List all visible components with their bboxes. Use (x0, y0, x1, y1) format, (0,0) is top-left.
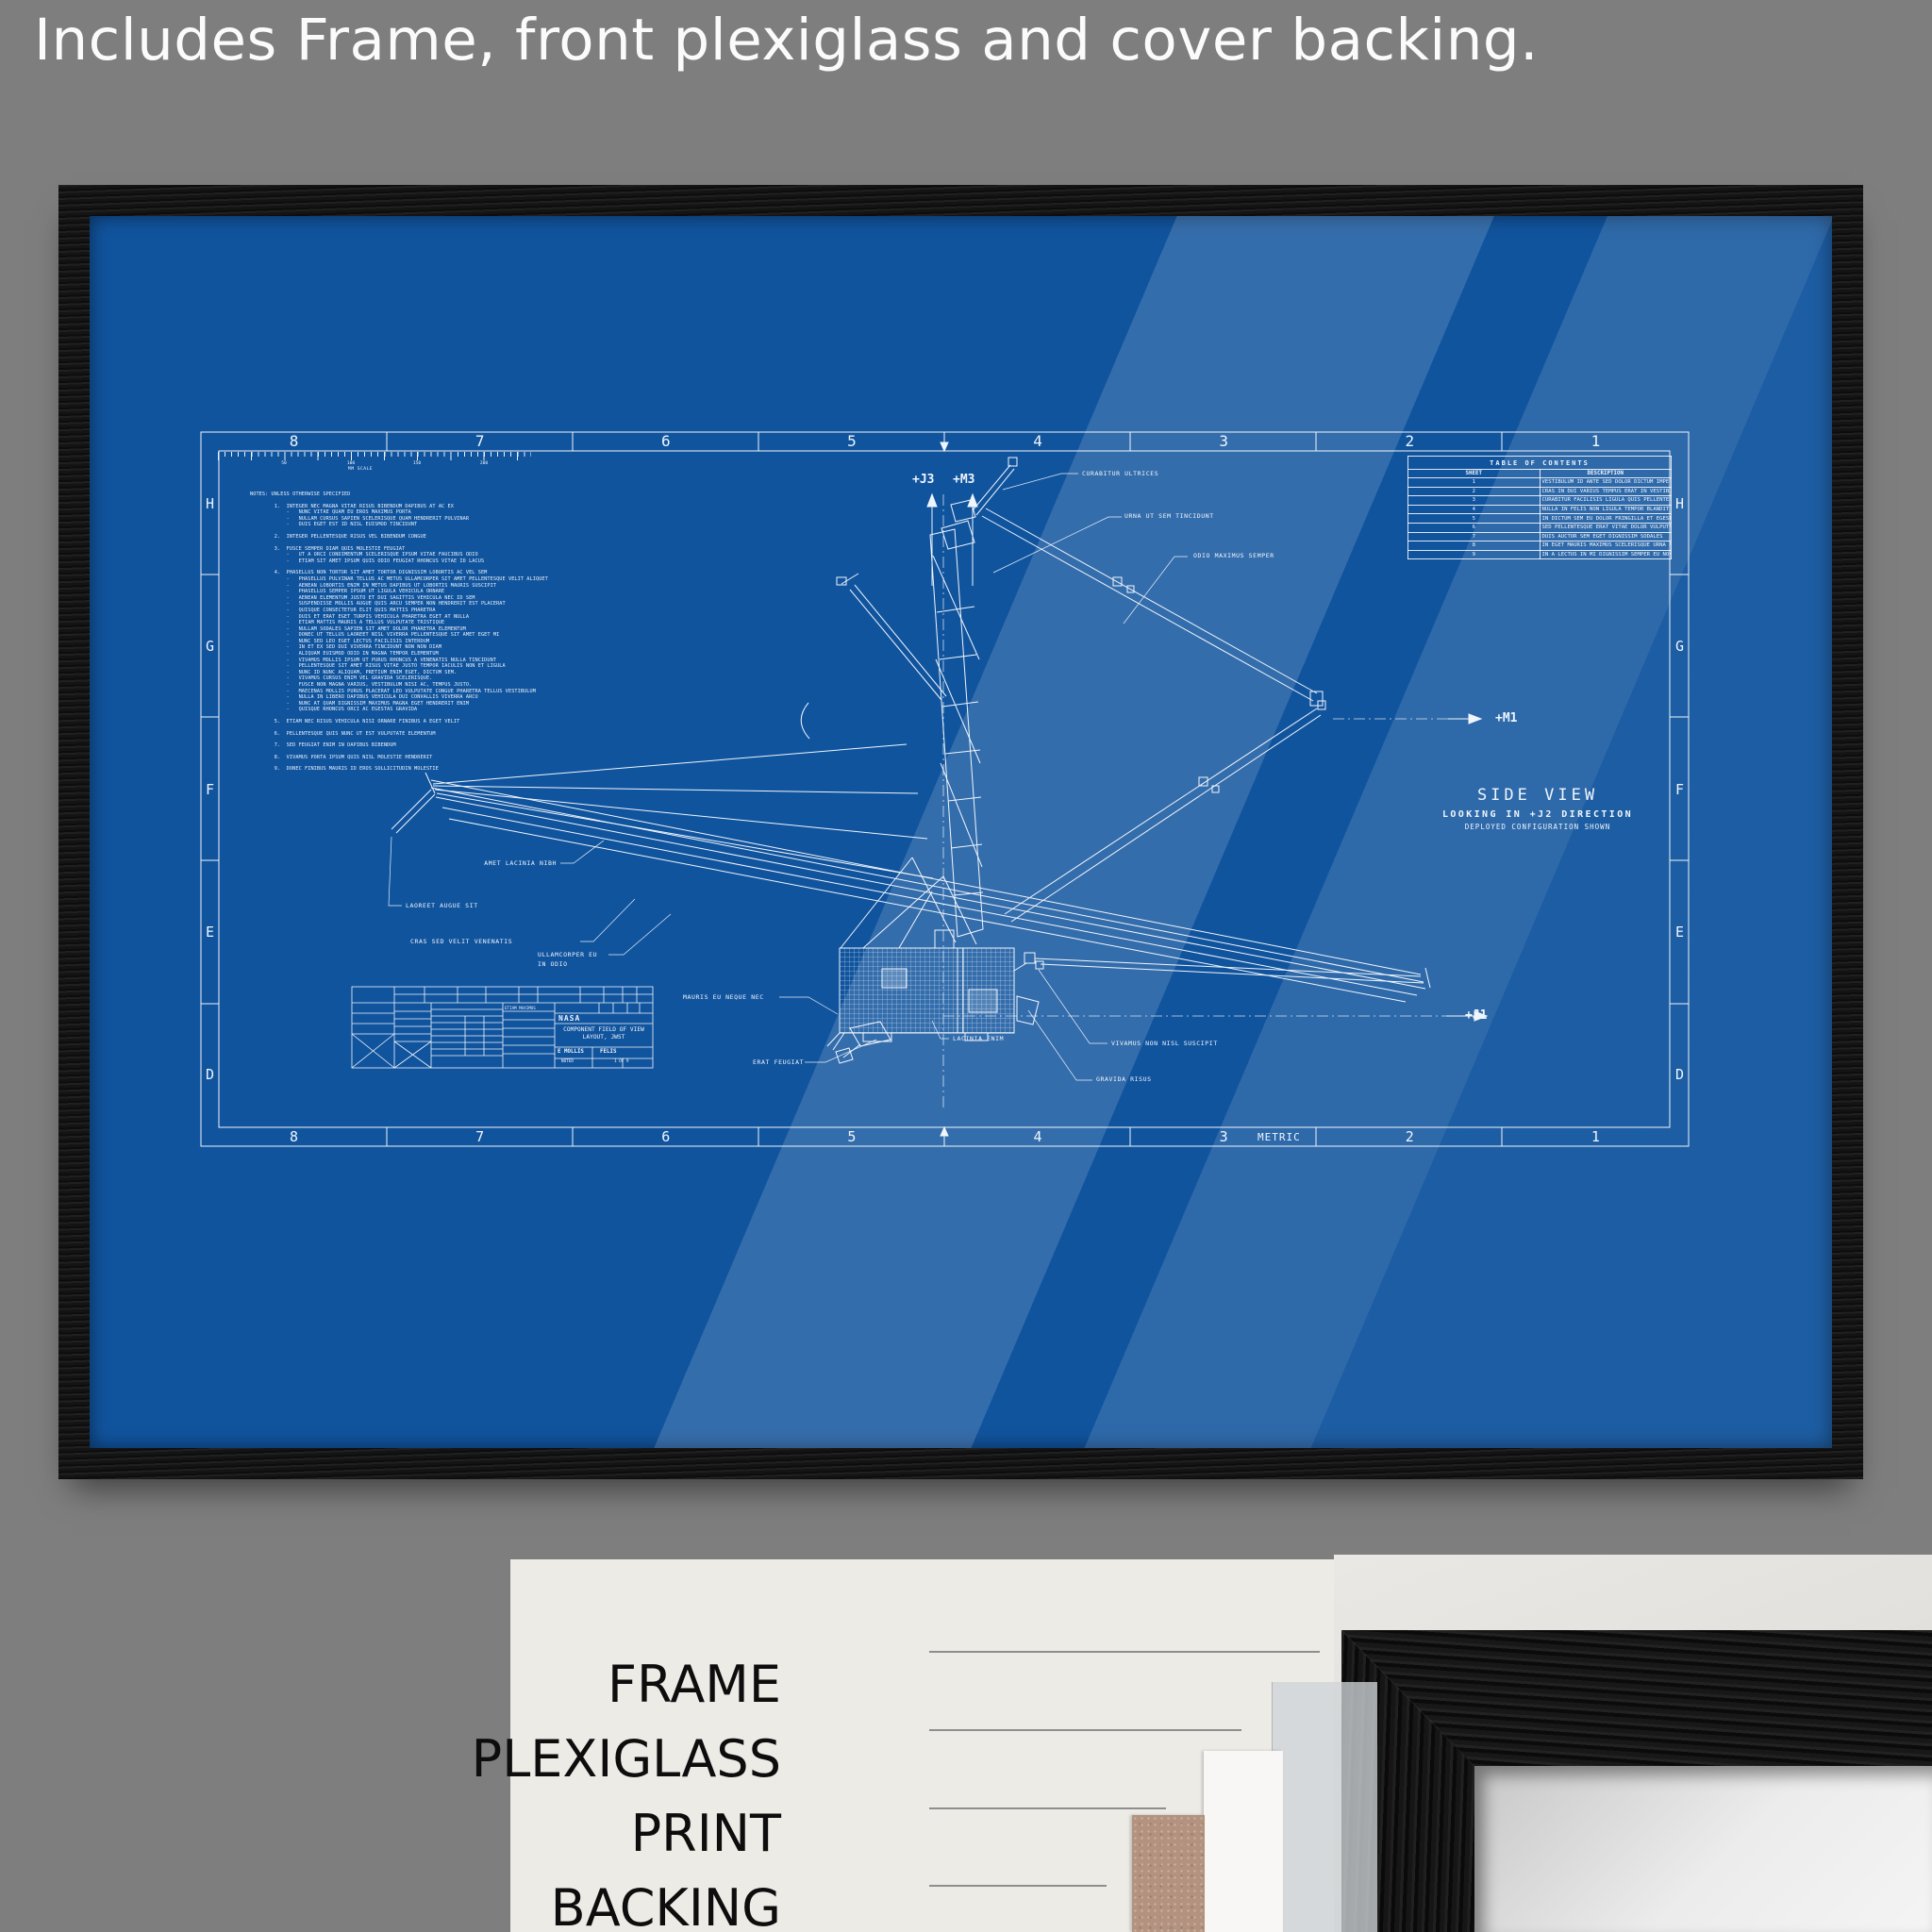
toc-col-sheet: SHEET (1408, 470, 1541, 478)
view-title: SIDE VIEW (1396, 786, 1679, 805)
zone-letter: E (1671, 860, 1689, 1003)
toc-description: IN DICTUM SEM EU DOLOR FRINGILLA ET EGES… (1540, 514, 1672, 524)
zone-letter: G (1671, 575, 1689, 717)
zone-number: 8 (201, 1127, 387, 1146)
axis-label-m1: +M1 (1495, 711, 1517, 725)
note-line: - NULLAM CURSUS SAPIEN SCELERISQUE QUAM … (250, 516, 548, 523)
notes-block: NOTES: UNLESS OTHERWISE SPECIFIED 1. INT… (250, 491, 548, 773)
zone-letter: D (1671, 1004, 1689, 1146)
drawing-title-line2: LAYOUT, JWST (555, 1034, 653, 1041)
note-line: 4. PHASELLUS NON TORTOR SIT AMET TORTOR … (250, 570, 548, 576)
toc-description: CURABITUR FACILISIS LIGULA QUIS PELLENTE… (1540, 496, 1672, 506)
toc-sheet-number: 3 (1408, 496, 1541, 506)
view-subtitle: LOOKING IN +J2 DIRECTION (1396, 809, 1679, 820)
zone-letter: G (201, 575, 219, 717)
blueprint-print: 87654321 87654321 HGFED HGFED METRIC 501… (90, 216, 1832, 1448)
zone-number: 5 (758, 432, 944, 451)
toc-row: 6 SED PELLENTESQUE ERAT VITAE DOLOR VULP… (1408, 523, 1672, 532)
jwst-side-view-drawing (90, 216, 1832, 1448)
print-layer (1204, 1751, 1283, 1932)
title-block-agency: NASA (558, 1014, 580, 1023)
zone-letter: D (201, 1004, 219, 1146)
note-line: - NUNC SED LEO EGET LECTUS FACILISIS INT… (250, 639, 548, 645)
zone-letter: F (201, 718, 219, 860)
toc-description: CRAS IN DUI VARIUS TEMPUS ERAT IN VESTIB… (1540, 487, 1672, 496)
zone-letter: H (1671, 432, 1689, 575)
leader-line-plexiglass (929, 1729, 1241, 1731)
note-line: - VIVAMUS CURSUS ENIM VEL GRAVIDA SCELER… (250, 675, 548, 682)
toc-row: 3 CURABITUR FACILISIS LIGULA QUIS PELLEN… (1408, 496, 1672, 506)
callout-cras-sed-velit: CRAS SED VELIT VENENATIS (410, 938, 512, 946)
note-line: - SUSPENDISSE MOLLIS AUGUE QUIS ARCU SEM… (250, 601, 548, 608)
axis-label-m3: +M3 (953, 473, 974, 487)
title-block-name1: E MOLLIS (558, 1049, 584, 1055)
note-line: - QUISQUE RHONCUS ORCI AC EGESTAS GRAVID… (250, 707, 548, 713)
callout-erat-feugiat: ERAT FEUGIAT (753, 1058, 804, 1067)
callout-ullamcorper-line2: IN ODIO (538, 960, 568, 969)
toc-description: VESTIBULUM ID ANTE SED DOLOR DICTUM IMPE… (1540, 478, 1672, 488)
axis-label-j1: +J1 (1465, 1008, 1487, 1023)
layer-labels: FRAMEPLEXIGLASSPRINTBACKING (64, 1647, 781, 1932)
ruler-tick-label: 150 (413, 461, 421, 466)
picture-frame: 87654321 87654321 HGFED HGFED METRIC 501… (58, 185, 1863, 1479)
toc-description: DUIS AUCTOR SEM EGET DIGNISSIM SODALES (1540, 532, 1672, 541)
note-line: - UT A ORCI CONDIMENTUM SCELERISQUE IPSU… (250, 552, 548, 558)
photo-frame-opening (1474, 1766, 1932, 1932)
note-line: - NUNC AT QUAM DIGNISSIM MAXIMUS MAGNA E… (250, 701, 548, 708)
layer-label: PLEXIGLASS (64, 1722, 781, 1796)
note-line: 7. SED FEUGIAT ENIM IN DAPIBUS BIBENDUM (250, 742, 548, 749)
ruler-ticks (218, 452, 531, 460)
zone-number: 7 (387, 1127, 573, 1146)
border-zone-numbers-bottom: 87654321 (201, 1127, 1689, 1146)
caption-text: Includes Frame, front plexiglass and cov… (34, 4, 1539, 77)
zone-number: 3 (1131, 432, 1317, 451)
callout-ullamcorper-line1: ULLAMCORPER EU (538, 951, 597, 959)
toc-sheet-number: 5 (1408, 514, 1541, 524)
title-block-sheet-note: 1 OF 9 (614, 1059, 629, 1064)
view-title-block: SIDE VIEW LOOKING IN +J2 DIRECTION DEPLO… (1396, 786, 1679, 831)
note-line: - NUNC VITAE QUAM EU EROS MAXIMUS PORTA (250, 509, 548, 516)
note-line: - PHASELLUS PULVINAR TELLUS AC METUS ULL… (250, 576, 548, 583)
ruler-caption: MM SCALE (348, 467, 373, 472)
toc-sheet-number: 2 (1408, 487, 1541, 496)
border-zone-letters-left: HGFED (201, 432, 219, 1146)
note-line: - ALIQUAM EUISMOD ODIO IN MAGNA TEMPOR E… (250, 651, 548, 658)
leader-line-backing (929, 1885, 1107, 1887)
callout-odio-maximus: ODIO MAXIMUS SEMPER (1193, 552, 1274, 560)
toc-row: 7 DUIS AUCTOR SEM EGET DIGNISSIM SODALES (1408, 532, 1672, 541)
zone-number: 4 (945, 432, 1131, 451)
callout-amet-lacinia: AMET LACINIA NIBH (453, 859, 557, 868)
ruler-tick-label: 200 (480, 461, 488, 466)
note-line: 8. VIVAMUS PORTA IPSUM QUIS NISL MOLESTI… (250, 755, 548, 761)
callout-gravida-risus: GRAVIDA RISUS (1096, 1075, 1152, 1084)
ruler-tick-label: 50 (281, 461, 287, 466)
toc-description: IN A LECTUS IN MI DIGNISSIM SEMPER EU NO… (1540, 550, 1672, 559)
zone-letter: H (201, 432, 219, 575)
layer-label: FRAME (64, 1647, 781, 1722)
note-line: - AENEAN LOBORTIS ENIM IN METUS DAPIBUS … (250, 583, 548, 590)
note-line: - DONEC UT TELLUS LAOREET NISL VIVERRA P… (250, 632, 548, 639)
zone-number: 8 (201, 432, 387, 451)
zone-number: 4 (945, 1127, 1131, 1146)
table-of-contents: TABLE OF CONTENTS SHEET DESCRIPTION 1 VE… (1407, 456, 1672, 559)
callout-curabitur-ultrices: CURABITUR ULTRICES (1082, 470, 1158, 478)
note-line: - IN ET EX SED DUI VIVERRA TINCIDUNT NON… (250, 644, 548, 651)
note-line: 3. FUSCE SEMPER DIAM QUIS MOLESTIE FEUGI… (250, 546, 548, 553)
zone-number: 5 (758, 1127, 944, 1146)
blueprint-sheet: 87654321 87654321 HGFED HGFED METRIC 501… (90, 216, 1832, 1448)
note-line: - NULLAM SODALES SAPIEN SIT AMET DOLOR P… (250, 626, 548, 633)
note-line: 9. DONEC FINIBUS MAURIS ID EROS SOLLICIT… (250, 766, 548, 773)
toc-row: 2 CRAS IN DUI VARIUS TEMPUS ERAT IN VEST… (1408, 487, 1672, 496)
zone-number: 1 (1503, 432, 1689, 451)
axis-label-j3: +J3 (912, 473, 934, 487)
note-line: - ETIAM SIT AMET IPSUM QUIS ODIO FEUGIAT… (250, 558, 548, 565)
product-listing-image: Includes Frame, front plexiglass and cov… (0, 0, 1932, 1932)
note-line: - DUIS ET ERAT EGET TURPIS VEHICULA PHAR… (250, 614, 548, 621)
note-line: - ETIAM MATTIS MAURIS A TELLUS VULPUTATE… (250, 620, 548, 626)
note-line: 2. INTEGER PELLENTESQUE RISUS VEL BIBEND… (250, 534, 548, 541)
zone-number: 6 (573, 432, 758, 451)
note-line: - MAECENAS MOLLIS PURUS PLACERAT LEO VUL… (250, 689, 548, 695)
zone-number: 2 (1317, 432, 1503, 451)
toc-sheet-number: 7 (1408, 532, 1541, 541)
toc-sheet-number: 4 (1408, 505, 1541, 514)
plexiglass-layer (1273, 1682, 1377, 1932)
callout-lacinia-enim: LACINIA ENIM (953, 1035, 1004, 1043)
toc-sheet-number: 6 (1408, 523, 1541, 532)
leader-line-print (929, 1807, 1166, 1809)
title-block-name2: FELIS (600, 1049, 616, 1055)
note-line: - FUSCE NON MAGNA VARIUS, VESTIBULUM NIS… (250, 682, 548, 689)
zone-number: 2 (1317, 1127, 1503, 1146)
ruler-tick-label: 100 (347, 461, 355, 466)
callout-vivamus-non-nisl: VIVAMUS NON NISL SUSCIPIT (1111, 1040, 1218, 1048)
zone-number: 7 (387, 432, 573, 451)
zone-number: 6 (573, 1127, 758, 1146)
toc-title: TABLE OF CONTENTS (1408, 457, 1672, 470)
title-block-scale-note: NOTED (561, 1059, 574, 1064)
toc-sheet-number: 1 (1408, 478, 1541, 488)
callout-urna-ut-sem: URNA UT SEM TINCIDUNT (1124, 512, 1214, 521)
note-line: 1. INTEGER NEC MAGNA VITAE RISUS BIBENDU… (250, 504, 548, 510)
zone-number: 1 (1503, 1127, 1689, 1146)
zone-letter: E (201, 860, 219, 1003)
note-line: - DUIS EGET EST ID NISL EUISMOD TINCIDUN… (250, 522, 548, 528)
toc-description: SED PELLENTESQUE ERAT VITAE DOLOR VULPUT… (1540, 523, 1672, 532)
metric-label: METRIC (1257, 1130, 1301, 1145)
toc-description: IN EGET MAURIS MAXIMUS SCELERISQUE URNA … (1540, 541, 1672, 551)
note-line: - NUNC ID NUNC ALIQUAM, PRETIUM ENIM EGE… (250, 670, 548, 676)
layer-label: BACKING (64, 1871, 781, 1932)
note-line: - AENEAN ELEMENTUM JUSTO ET DUI SAGITTIS… (250, 595, 548, 602)
note-line: 6. PELLENTESQUE QUIS NUNC UT EST VULPUTA… (250, 731, 548, 738)
callout-mauris-eu-neque: MAURIS EU NEQUE NEC (683, 993, 764, 1002)
toc-row: 1 VESTIBULUM ID ANTE SED DOLOR DICTUM IM… (1408, 478, 1672, 488)
view-note: DEPLOYED CONFIGURATION SHOWN (1396, 823, 1679, 831)
layer-label: PRINT (64, 1796, 781, 1871)
toc-sheet-number: 9 (1408, 550, 1541, 559)
toc-description: NULLA IN FELIS NON LIGULA TEMPOR BLANDIT… (1540, 505, 1672, 514)
toc-sheet-number: 8 (1408, 541, 1541, 551)
mm-scale-ruler: 50100150200 MM SCALE (218, 452, 531, 476)
toc-col-description: DESCRIPTION (1540, 470, 1672, 478)
toc-row: 4 NULLA IN FELIS NON LIGULA TEMPOR BLAND… (1408, 505, 1672, 514)
leader-line-frame (929, 1651, 1320, 1653)
toc-row: 5 IN DICTUM SEM EU DOLOR FRINGILLA ET EG… (1408, 514, 1672, 524)
title-block-micro-label: ETIAM MAXIMUS (505, 1006, 536, 1010)
callout-laoreet-augue: LAOREET AUGUE SIT (406, 902, 478, 910)
note-line: - QUISQUE CONSECTETUR ELIT QUIS MATTIS P… (250, 608, 548, 614)
note-line: - PHASELLUS SEMPER IPSUM UT LIGULA VEHIC… (250, 589, 548, 595)
toc-row: 9 IN A LECTUS IN MI DIGNISSIM SEMPER EU … (1408, 550, 1672, 559)
frame-corner-photo (1334, 1555, 1932, 1932)
note-line: - PELLENTESQUE SIT AMET RISUS VITAE JUST… (250, 663, 548, 670)
drawing-title-line1: COMPONENT FIELD OF VIEW (555, 1026, 653, 1033)
backing-layer (1132, 1815, 1205, 1932)
note-line: - NULLA IN LIBERO DAPIBUS VEHICULA DUI C… (250, 694, 548, 701)
note-line: 5. ETIAM NEC RISUS VEHICULA NISI ORNARE … (250, 719, 548, 725)
toc-row: 8 IN EGET MAURIS MAXIMUS SCELERISQUE URN… (1408, 541, 1672, 551)
note-line: NOTES: UNLESS OTHERWISE SPECIFIED (250, 491, 548, 498)
note-line: - VIVAMUS MOLLIS IPSUM UT PURUS RHONCUS … (250, 658, 548, 664)
border-zone-numbers-top: 87654321 (201, 432, 1689, 451)
